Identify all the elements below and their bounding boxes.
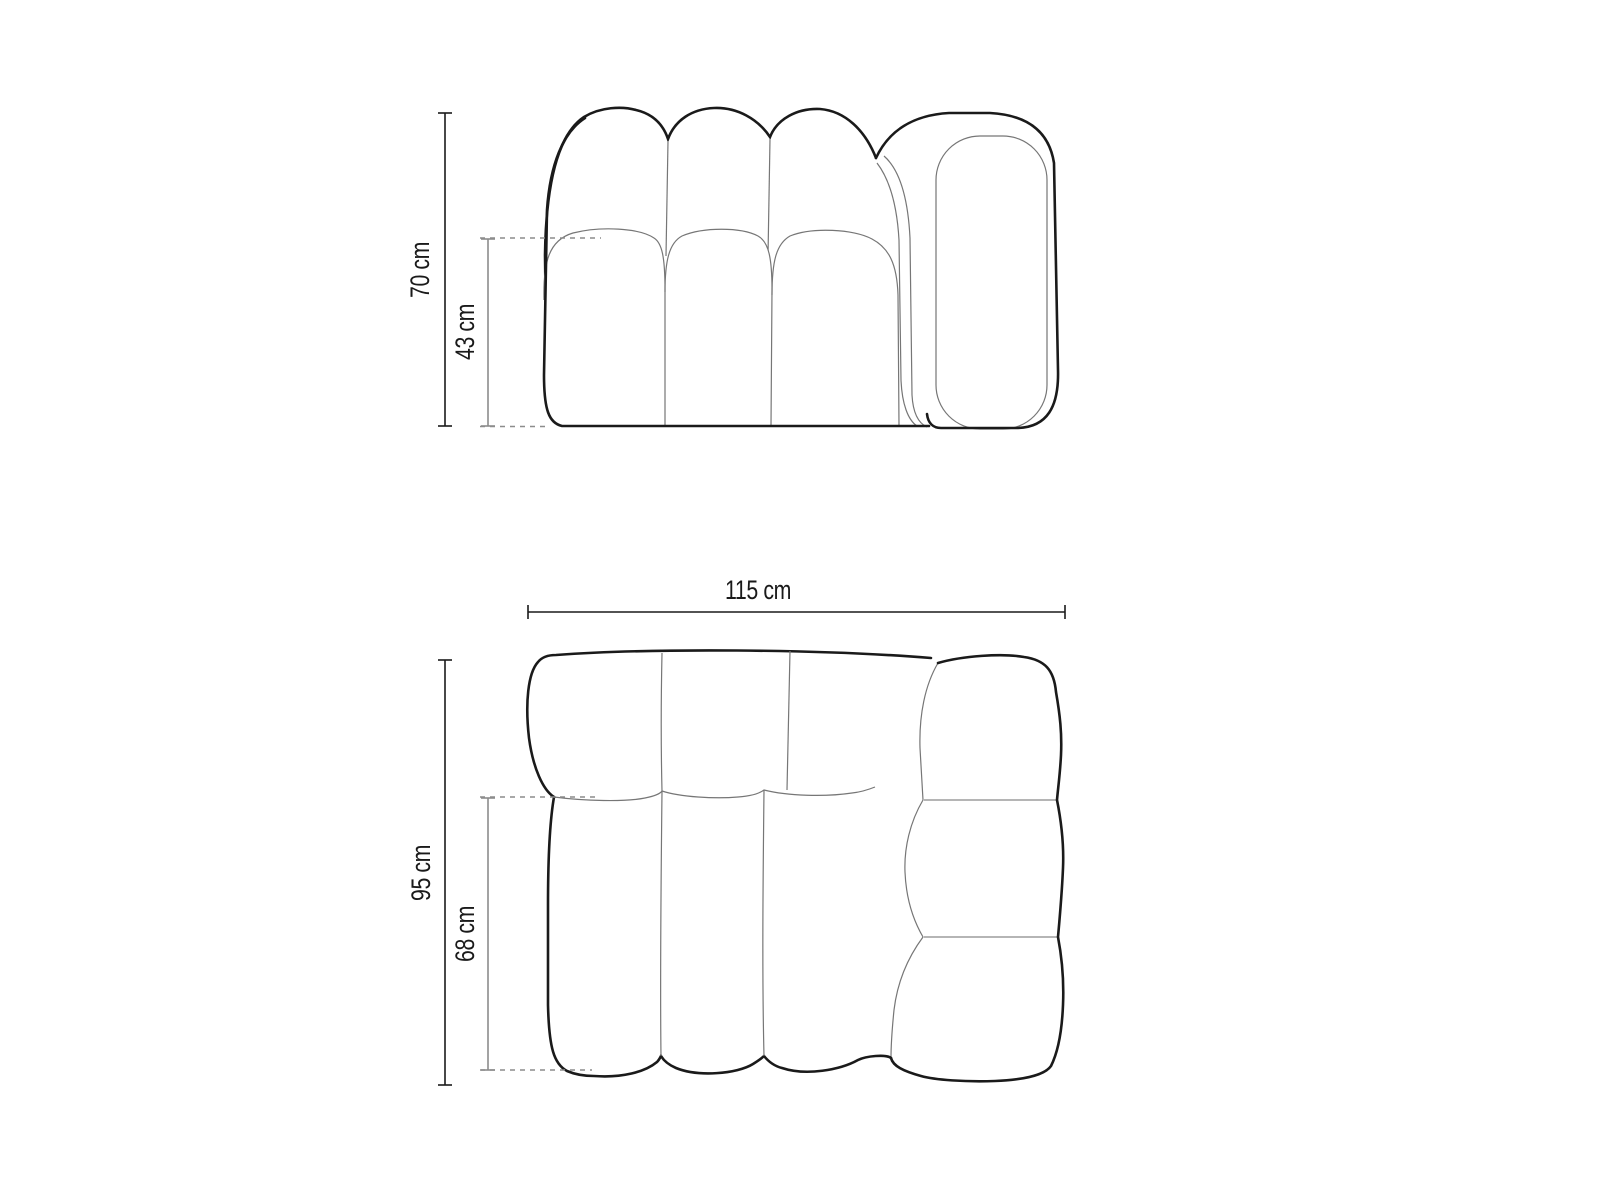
top-view [527, 650, 1063, 1081]
front-seat-cushion-2-fill [665, 229, 772, 426]
dim-label-seat-depth: 68 cm [450, 906, 480, 962]
dim-line-43cm [481, 239, 495, 426]
dim-line-95cm [438, 660, 452, 1085]
front-armrest-fill [876, 113, 1058, 428]
dim-label-total-depth: 95 cm [406, 845, 436, 901]
drawing-svg: 70 cm 43 cm [0, 0, 1600, 1200]
plan-seat-fill [548, 787, 891, 1077]
dim-label-total-width: 115 cm [725, 575, 791, 605]
front-dimension-labels: 70 cm 43 cm [405, 242, 480, 360]
front-seat-cushion-3-fill [771, 230, 899, 426]
dim-line-115cm [528, 605, 1065, 619]
plan-back-band-fill [527, 655, 932, 797]
front-view [544, 108, 1058, 429]
technical-drawing-page: 70 cm 43 cm [0, 0, 1600, 1200]
dim-line-70cm [438, 113, 452, 426]
front-seat-cushion-1-fill [544, 229, 665, 426]
dim-line-68cm [481, 798, 495, 1070]
dim-label-total-height: 70 cm [405, 242, 435, 298]
dim-label-seat-height: 43 cm [450, 304, 480, 360]
